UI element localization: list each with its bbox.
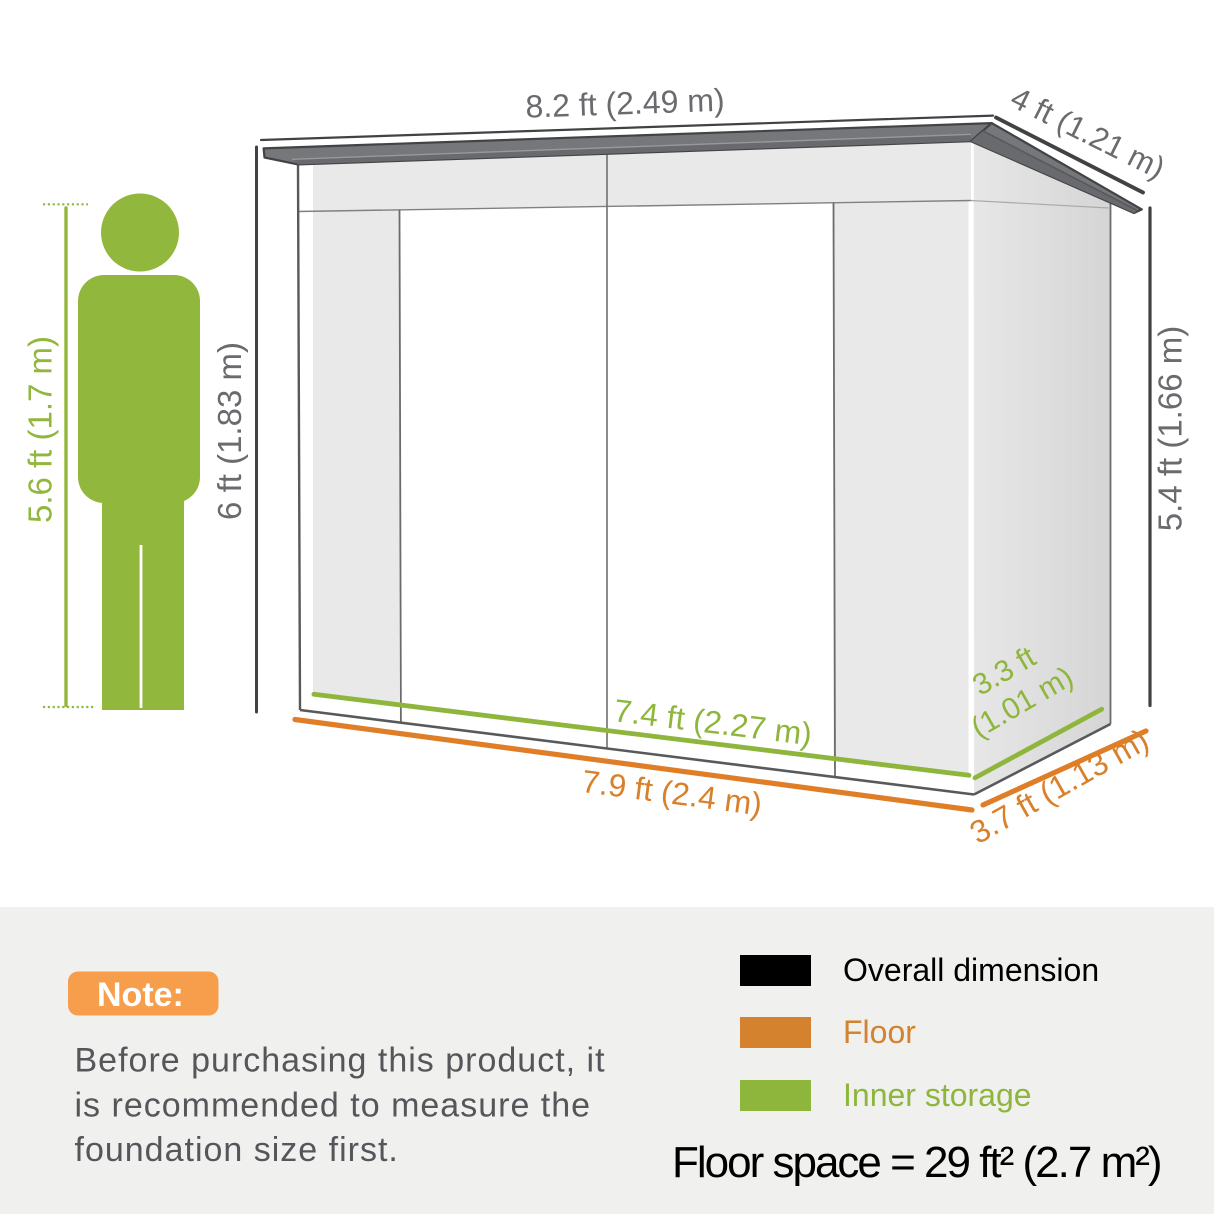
svg-text:Floor space = 29 ft² (2.7 m²): Floor space = 29 ft² (2.7 m²) — [672, 1138, 1161, 1187]
svg-text:Overall dimension: Overall dimension — [843, 952, 1099, 988]
svg-text:8.2 ft (2.49 m): 8.2 ft (2.49 m) — [525, 82, 725, 125]
svg-text:Inner storage: Inner storage — [843, 1077, 1032, 1113]
svg-text:Note:: Note: — [97, 976, 184, 1014]
svg-text:5.6 ft (1.7 m): 5.6 ft (1.7 m) — [22, 336, 59, 523]
svg-text:is recommended to measure the: is recommended to measure the — [75, 1087, 592, 1125]
svg-text:Floor: Floor — [843, 1014, 916, 1050]
svg-text:6 ft (1.83 m): 6 ft (1.83 m) — [211, 342, 248, 520]
svg-text:Before purchasing this product: Before purchasing this product, it — [75, 1042, 606, 1080]
svg-text:foundation size first.: foundation size first. — [75, 1131, 399, 1169]
svg-text:5.4 ft (1.66 m): 5.4 ft (1.66 m) — [1152, 326, 1189, 531]
